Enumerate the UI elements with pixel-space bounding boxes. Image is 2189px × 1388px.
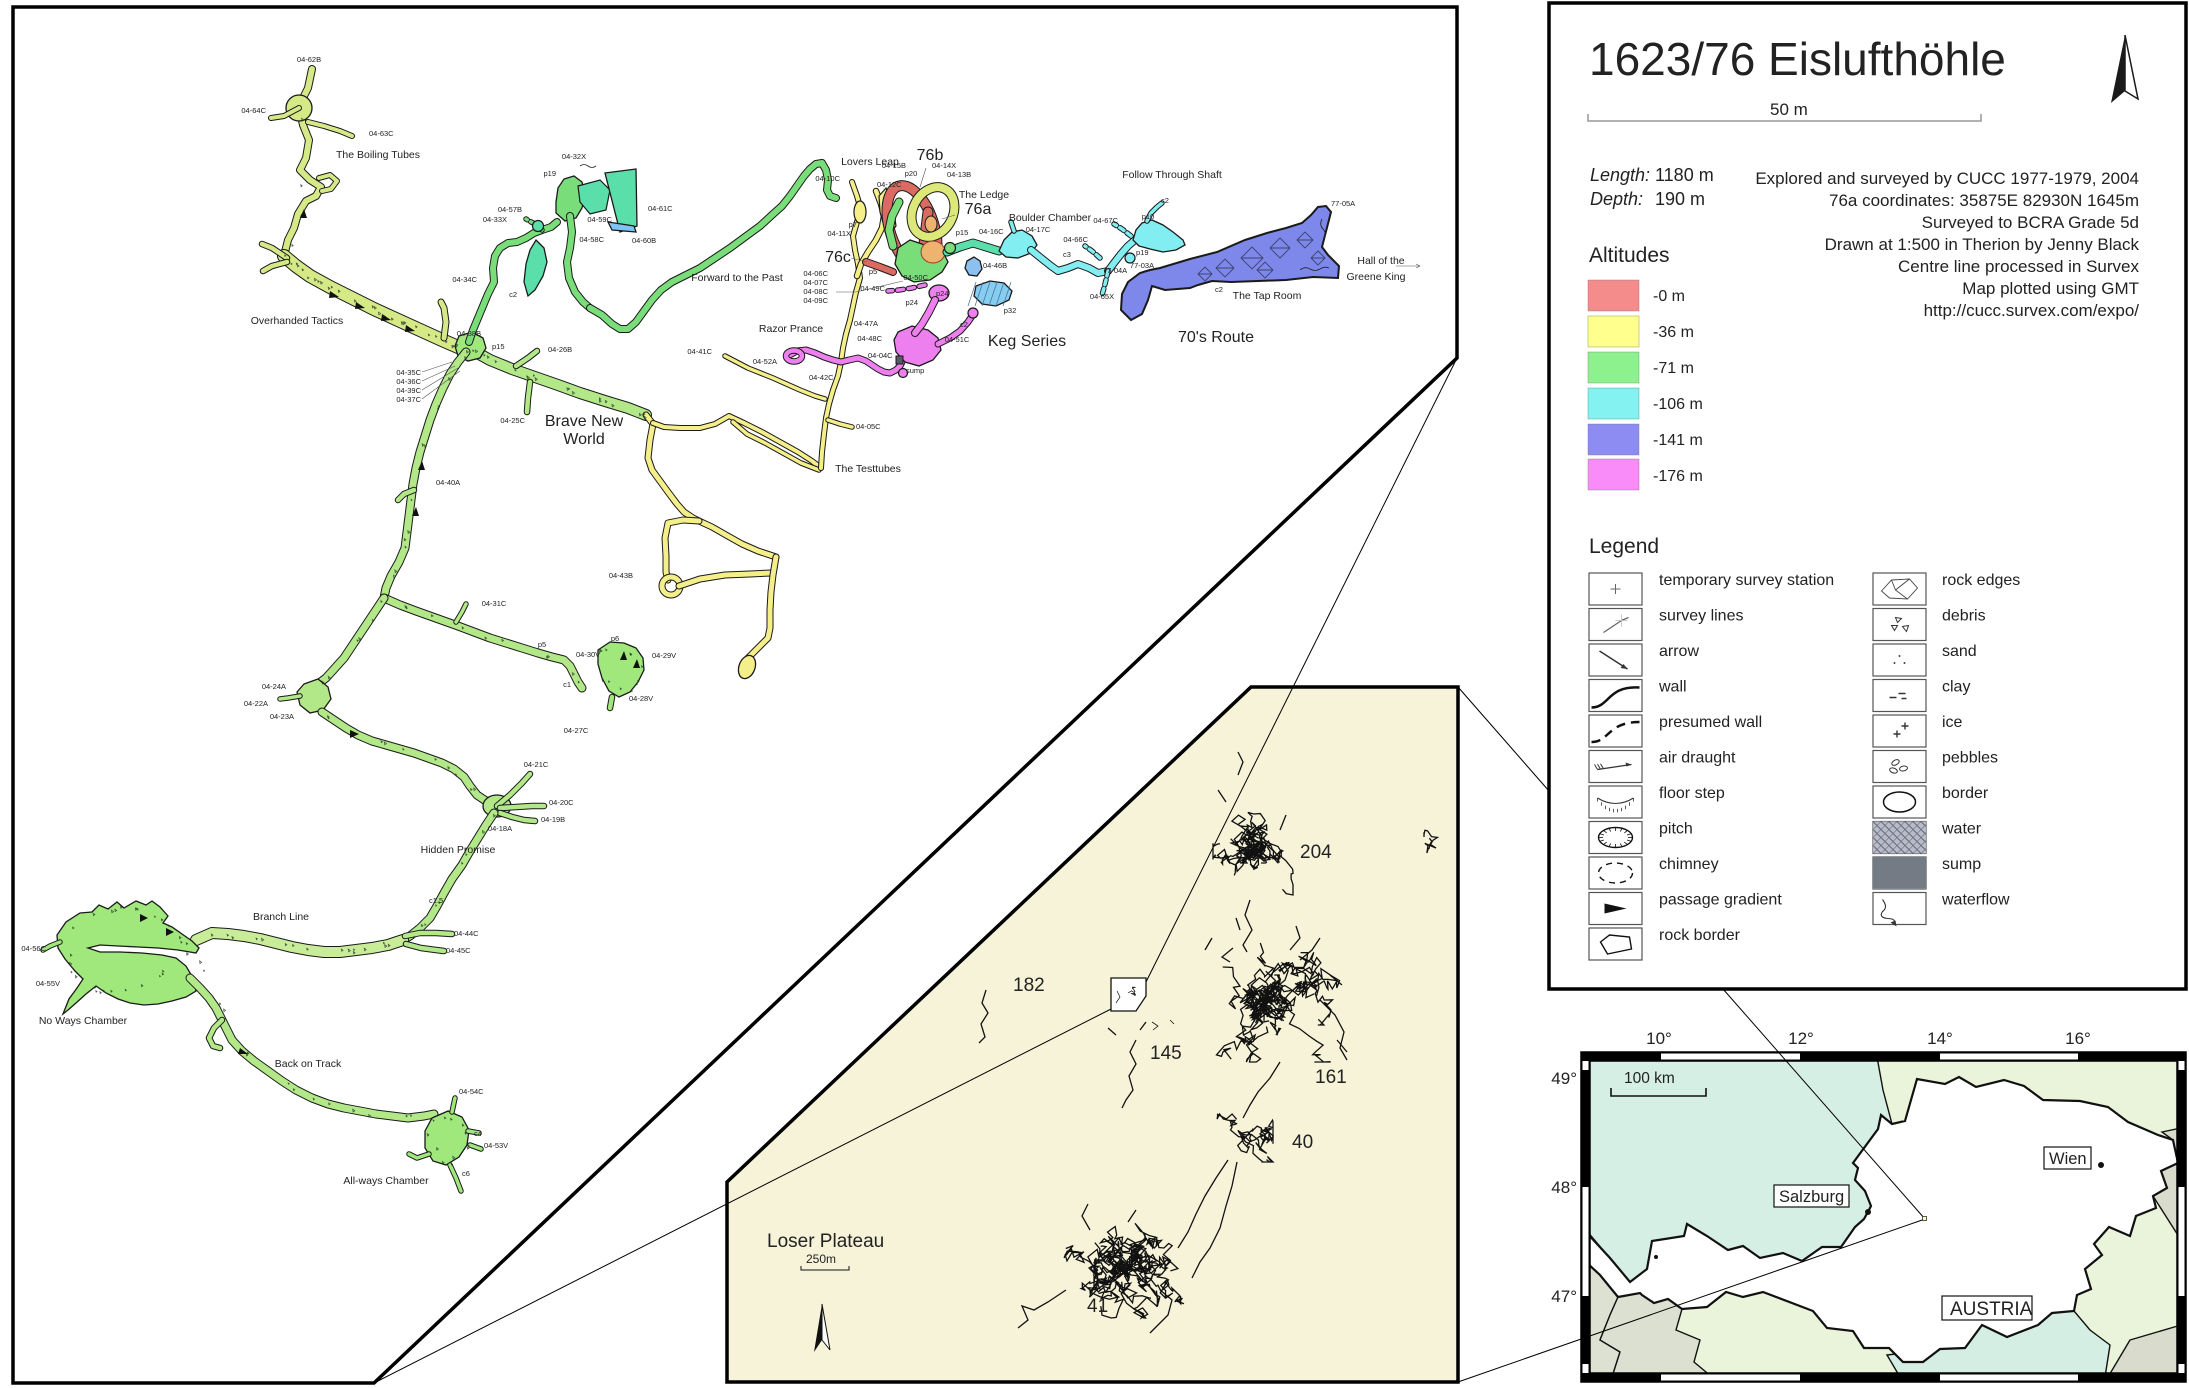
svg-text:04-43B: 04-43B — [609, 571, 633, 580]
svg-text:161: 161 — [1315, 1067, 1347, 1088]
svg-text:04-05C: 04-05C — [856, 422, 881, 431]
svg-text:04-32X: 04-32X — [562, 152, 586, 161]
svg-text:04-66C: 04-66C — [1063, 235, 1088, 244]
svg-text:c3: c3 — [1063, 250, 1071, 259]
svg-text:Surveyed to BCRA Grade 5d: Surveyed to BCRA Grade 5d — [1922, 213, 2139, 232]
svg-text:16°: 16° — [2065, 1029, 2091, 1048]
svg-text:04-12C: 04-12C — [877, 180, 902, 189]
svg-text:AUSTRIA: AUSTRIA — [1950, 1299, 2033, 1320]
svg-text:rock border: rock border — [1659, 927, 1741, 944]
svg-text:04-23A: 04-23A — [270, 712, 294, 721]
svg-text:14°: 14° — [1927, 1029, 1953, 1048]
svg-text:floor step: floor step — [1659, 785, 1725, 802]
svg-text:04-07C: 04-07C — [803, 278, 828, 287]
svg-text:04-42C: 04-42C — [809, 373, 834, 382]
svg-text:Wien: Wien — [2049, 1150, 2087, 1168]
svg-text:04-49C: 04-49C — [860, 284, 885, 293]
svg-text:41: 41 — [1087, 1296, 1108, 1317]
svg-text:04-41C: 04-41C — [687, 347, 712, 356]
svg-text:-106 m: -106 m — [1653, 396, 1703, 413]
svg-text:p7: p7 — [849, 220, 857, 229]
svg-text:p32: p32 — [1004, 306, 1017, 315]
svg-text:chimney: chimney — [1659, 856, 1719, 873]
svg-text:76a coordinates: 35875E 82930N: 76a coordinates: 35875E 82930N 1645m — [1829, 191, 2139, 210]
svg-text:-176 m: -176 m — [1653, 468, 1703, 485]
svg-text:p5: p5 — [538, 640, 546, 649]
svg-text:ice: ice — [1942, 714, 1963, 731]
svg-text:04-47A: 04-47A — [854, 319, 878, 328]
svg-text:pitch: pitch — [1659, 821, 1693, 838]
svg-text:182: 182 — [1013, 975, 1045, 996]
svg-text:Explored and surveyed by CUCC: Explored and surveyed by CUCC 1977-1979,… — [1755, 169, 2139, 188]
svg-text:10°: 10° — [1646, 1029, 1672, 1048]
svg-text:04-16C: 04-16C — [979, 227, 1004, 236]
svg-text:p24: p24 — [936, 289, 949, 298]
svg-text:p20: p20 — [905, 169, 918, 178]
svg-text:1623/76 Eislufthöhle: 1623/76 Eislufthöhle — [1589, 33, 2006, 85]
svg-text:04-04C: 04-04C — [868, 351, 893, 360]
svg-text:190 m: 190 m — [1655, 189, 1705, 209]
svg-text:Map plotted using GMT: Map plotted using GMT — [1962, 279, 2139, 298]
svg-text:p15: p15 — [956, 228, 969, 237]
svg-text:04-13B: 04-13B — [947, 170, 971, 179]
svg-text:Back on Track: Back on Track — [275, 1058, 342, 1070]
svg-text:77-04A: 77-04A — [1103, 266, 1127, 275]
svg-text:04-64C: 04-64C — [241, 106, 266, 115]
svg-text:04-17C: 04-17C — [1026, 225, 1051, 234]
svg-text:waterflow: waterflow — [1941, 892, 2010, 909]
svg-text:04-45C: 04-45C — [446, 946, 471, 955]
svg-text:c2: c2 — [509, 290, 517, 299]
svg-text:04-15B: 04-15B — [882, 161, 906, 170]
svg-text:04-06C: 04-06C — [803, 269, 828, 278]
svg-text:Altitudes: Altitudes — [1589, 244, 1670, 267]
svg-text:Legend: Legend — [1589, 535, 1659, 558]
svg-text:04-50C: 04-50C — [903, 273, 928, 282]
svg-text:Depth:: Depth: — [1590, 189, 1643, 209]
svg-text:204: 204 — [1300, 842, 1332, 863]
svg-text:debris: debris — [1942, 608, 1986, 625]
svg-text:-36 m: -36 m — [1653, 324, 1694, 341]
svg-text:Forward to the Past: Forward to the Past — [691, 272, 783, 284]
svg-text:p19: p19 — [1136, 248, 1149, 257]
svg-text:04-20C: 04-20C — [549, 798, 574, 807]
svg-text:04-63C: 04-63C — [369, 129, 394, 138]
svg-text:temporary survey station: temporary survey station — [1659, 572, 1834, 589]
svg-text:04-28V: 04-28V — [629, 694, 653, 703]
svg-text:04-38B: 04-38B — [457, 329, 481, 338]
svg-text:Boulder Chamber: Boulder Chamber — [1009, 212, 1092, 224]
svg-text:World: World — [563, 431, 605, 448]
svg-text:76c: 76c — [825, 249, 851, 266]
svg-text:p10: p10 — [1142, 212, 1155, 221]
svg-text:04-31C: 04-31C — [482, 599, 507, 608]
svg-text:04-40A: 04-40A — [436, 478, 460, 487]
svg-text:49°: 49° — [1551, 1069, 1577, 1088]
svg-text:wall: wall — [1658, 679, 1687, 696]
svg-text:air draught: air draught — [1659, 750, 1736, 767]
svg-text:04-14X: 04-14X — [932, 161, 956, 170]
svg-text:145: 145 — [1150, 1043, 1182, 1064]
svg-text:04-18A: 04-18A — [488, 824, 512, 833]
svg-text:Salzburg: Salzburg — [1779, 1188, 1844, 1206]
svg-text:76a: 76a — [965, 201, 992, 218]
svg-text:p24: p24 — [905, 298, 918, 307]
svg-text:04-53V: 04-53V — [484, 1141, 508, 1150]
svg-text:04-61C: 04-61C — [648, 204, 673, 213]
svg-text:04-33X: 04-33X — [483, 215, 507, 224]
svg-text:p19: p19 — [543, 169, 556, 178]
svg-text:100 km: 100 km — [1624, 1070, 1675, 1087]
svg-text:04-55V: 04-55V — [36, 979, 60, 988]
svg-text:The Ledge: The Ledge — [959, 189, 1009, 201]
svg-text:Length:: Length: — [1590, 165, 1650, 185]
svg-text:c4: c4 — [474, 1129, 482, 1138]
svg-text:All-ways Chamber: All-ways Chamber — [343, 1175, 429, 1187]
svg-text:04-35C: 04-35C — [396, 368, 421, 377]
svg-text:04-11X: 04-11X — [827, 229, 851, 238]
svg-text:04-56C: 04-56C — [21, 944, 46, 953]
svg-text:04-67C: 04-67C — [1093, 216, 1118, 225]
svg-text:04-26B: 04-26B — [548, 345, 572, 354]
svg-text:04-34C: 04-34C — [452, 275, 477, 284]
svg-text:04-10C: 04-10C — [815, 174, 840, 183]
svg-text:Razor Prance: Razor Prance — [759, 323, 823, 335]
svg-text:The Tap Room: The Tap Room — [1233, 290, 1302, 302]
svg-text:p6: p6 — [611, 634, 619, 643]
svg-text:pebbles: pebbles — [1942, 750, 1998, 767]
svg-text:Brave New: Brave New — [545, 413, 624, 430]
svg-text:47°: 47° — [1551, 1287, 1577, 1306]
svg-text:04-37C: 04-37C — [396, 395, 421, 404]
svg-text:arrow: arrow — [1659, 643, 1699, 660]
svg-text:04-30V: 04-30V — [576, 650, 600, 659]
svg-text:-0 m: -0 m — [1653, 288, 1685, 305]
svg-text:c1.5: c1.5 — [429, 896, 443, 905]
svg-text:c2: c2 — [960, 320, 968, 329]
svg-text:77-03A: 77-03A — [1130, 261, 1154, 270]
svg-text:77-05A: 77-05A — [1331, 199, 1355, 208]
svg-text:04-21C: 04-21C — [524, 760, 549, 769]
svg-text:04-51C: 04-51C — [945, 335, 970, 344]
svg-text:04-59C: 04-59C — [587, 215, 612, 224]
svg-text:p15: p15 — [492, 342, 505, 351]
svg-text:border: border — [1942, 785, 1989, 802]
svg-text:12°: 12° — [1788, 1029, 1814, 1048]
svg-text:The Testtubes: The Testtubes — [835, 463, 901, 475]
svg-text:04-52A: 04-52A — [753, 357, 777, 366]
svg-text:04-22A: 04-22A — [244, 699, 268, 708]
svg-text:sump: sump — [1942, 856, 1981, 873]
svg-text:presumed wall: presumed wall — [1659, 714, 1762, 731]
svg-text:c6: c6 — [462, 1169, 470, 1178]
svg-text:c2: c2 — [1161, 196, 1169, 205]
svg-text:survey lines: survey lines — [1659, 608, 1743, 625]
svg-text:Hall of the: Hall of the — [1357, 255, 1404, 267]
svg-text:sand: sand — [1942, 643, 1977, 660]
svg-text:50 m: 50 m — [1770, 100, 1808, 119]
svg-text:04-25C: 04-25C — [500, 416, 525, 425]
svg-text:04-27C: 04-27C — [564, 726, 589, 735]
svg-text:-141 m: -141 m — [1653, 432, 1703, 449]
svg-text:04-48C: 04-48C — [857, 334, 882, 343]
svg-text:No Ways Chamber: No Ways Chamber — [39, 1015, 128, 1027]
svg-text:04-54C: 04-54C — [459, 1087, 484, 1096]
svg-text:Follow Through Shaft: Follow Through Shaft — [1122, 169, 1222, 181]
svg-text:The Boiling Tubes: The Boiling Tubes — [336, 149, 420, 161]
svg-text:Centre line processed in Surve: Centre line processed in Survex — [1898, 257, 2139, 276]
svg-text:04-58C: 04-58C — [579, 235, 604, 244]
svg-text:Greene King: Greene King — [1347, 271, 1406, 283]
svg-text:-71 m: -71 m — [1653, 360, 1694, 377]
svg-text:04-46B: 04-46B — [983, 261, 1007, 270]
svg-text:passage gradient: passage gradient — [1659, 892, 1782, 909]
svg-text:Loser Plateau: Loser Plateau — [767, 1231, 884, 1252]
svg-text:Overhanded Tactics: Overhanded Tactics — [251, 315, 344, 327]
svg-text:250m: 250m — [806, 1252, 836, 1266]
svg-text:Keg Series: Keg Series — [988, 333, 1066, 350]
svg-text:1180 m: 1180 m — [1655, 165, 1714, 185]
svg-text:04-29V: 04-29V — [652, 651, 676, 660]
svg-text:http://cucc.survex.com/expo/: http://cucc.survex.com/expo/ — [1924, 301, 2140, 320]
svg-text:04-08C: 04-08C — [803, 287, 828, 296]
svg-text:Hidden Promise: Hidden Promise — [421, 844, 496, 856]
svg-text:clay: clay — [1942, 679, 1970, 696]
svg-text:04-19B: 04-19B — [541, 815, 565, 824]
svg-text:04-65X: 04-65X — [1090, 292, 1114, 301]
svg-text:sump: sump — [906, 366, 924, 375]
svg-text:48°: 48° — [1551, 1178, 1577, 1197]
svg-text:70's Route: 70's Route — [1178, 329, 1254, 346]
svg-text:p5: p5 — [869, 267, 877, 276]
svg-text:Branch Line: Branch Line — [253, 911, 309, 923]
svg-text:c1: c1 — [563, 680, 571, 689]
svg-text:04-57B: 04-57B — [498, 205, 522, 214]
svg-text:04-62B: 04-62B — [297, 55, 321, 64]
svg-text:water: water — [1941, 821, 1982, 838]
svg-text:40: 40 — [1292, 1132, 1313, 1153]
svg-text:04-36C: 04-36C — [396, 377, 421, 386]
svg-text:04-39C: 04-39C — [396, 386, 421, 395]
svg-text:04-60B: 04-60B — [632, 236, 656, 245]
svg-text:04-44C: 04-44C — [454, 929, 479, 938]
svg-text:c2: c2 — [1215, 285, 1223, 294]
svg-text:rock edges: rock edges — [1942, 572, 2020, 589]
svg-text:04-09C: 04-09C — [803, 296, 828, 305]
svg-text:Drawn at 1:500 in Therion by J: Drawn at 1:500 in Therion by Jenny Black — [1825, 235, 2140, 254]
svg-text:04-24A: 04-24A — [262, 682, 286, 691]
